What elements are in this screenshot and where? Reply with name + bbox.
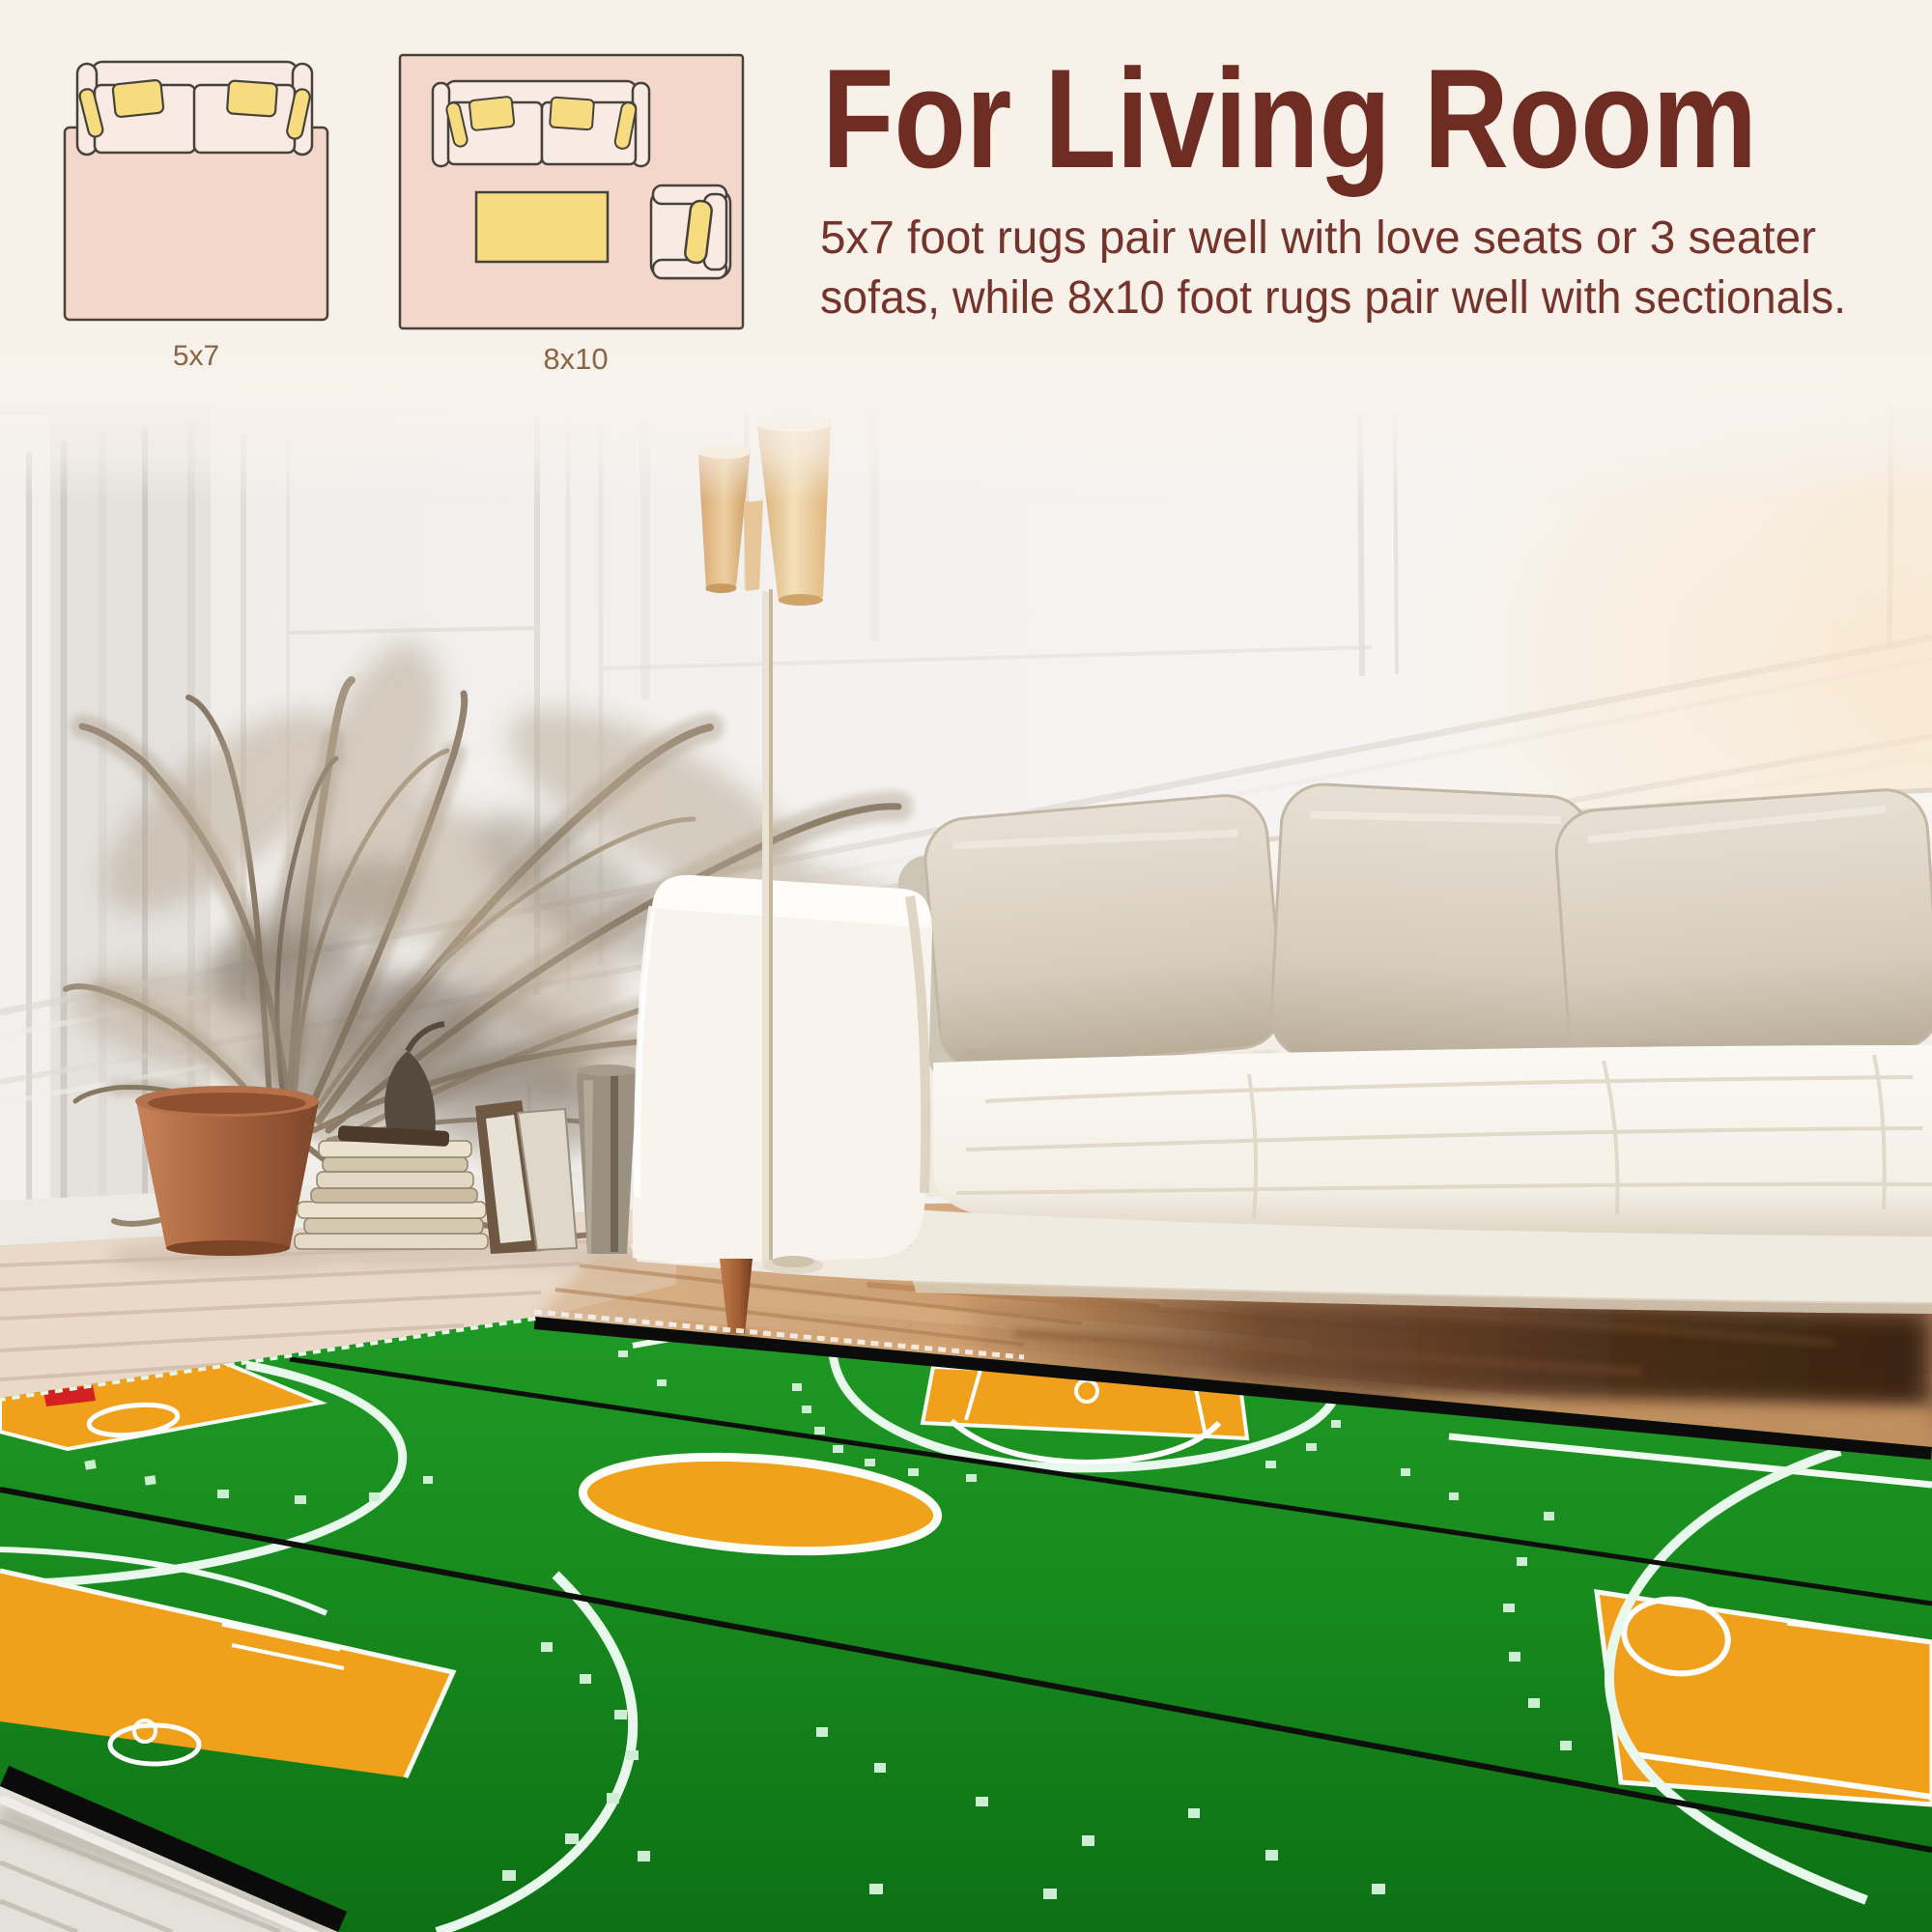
- svg-text:For Living Room: For Living Room: [822, 40, 1757, 197]
- svg-text:5x7 foot rugs pair well with l: 5x7 foot rugs pair well with love seats …: [820, 213, 1816, 264]
- svg-text:sofas, while 8x10 foot rugs pa: sofas, while 8x10 foot rugs pair well wi…: [820, 272, 1846, 324]
- svg-text:8x10: 8x10: [543, 342, 608, 376]
- svg-text:5x7: 5x7: [173, 340, 219, 372]
